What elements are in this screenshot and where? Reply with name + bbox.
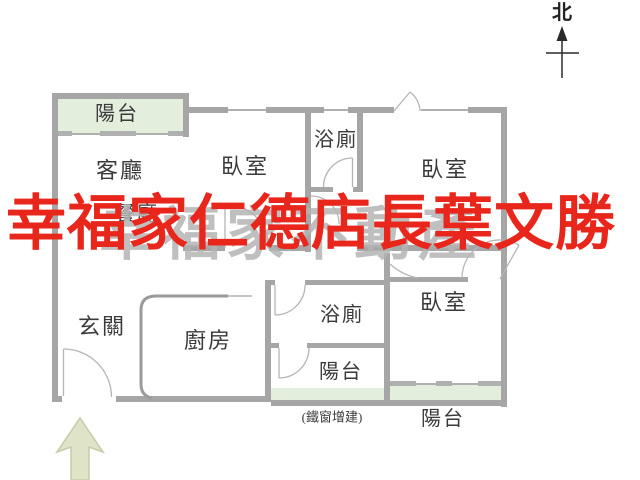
label-bedroom-top-right: 臥室 — [421, 159, 469, 181]
bath-top-door-arc — [324, 158, 353, 187]
label-bath-top: 浴廁 — [314, 130, 358, 150]
iron-window-strip-floor — [271, 388, 384, 400]
entry-door-arc — [64, 349, 112, 397]
label-balcony-top: 陽台 — [95, 104, 139, 124]
balcony-bottom-right-floor — [390, 384, 501, 400]
label-bath-bottom: 浴廁 — [320, 305, 364, 325]
balcony-mid-door-arc — [279, 348, 309, 378]
bath-bottom-door-arc — [275, 285, 305, 315]
top-outswing-door-leaf — [394, 92, 410, 111]
north-label: 北 — [552, 3, 572, 23]
label-entry: 玄關 — [78, 316, 126, 338]
north-arrow-icon — [546, 26, 579, 78]
label-balcony-mid: 陽台 — [319, 362, 363, 382]
entrance-arrow-icon — [57, 418, 103, 480]
label-balcony-bottom-right: 陽台 — [421, 409, 465, 429]
label-living-room: 客廳 — [96, 160, 144, 182]
label-bedroom-top-mid: 臥室 — [221, 156, 269, 178]
floor-plan-page: 陽台 客廳 餐廳 臥室 浴廁 臥室 玄關 廚房 浴廁 陽台 臥室 陽台 (鐵窗增… — [0, 0, 640, 480]
label-kitchen: 廚房 — [184, 330, 232, 352]
label-iron-window-note: (鐵窗增建) — [302, 411, 363, 424]
label-bedroom-bottom-right: 臥室 — [420, 292, 468, 314]
watermark-red: 幸福家仁德店長葉文勝 — [6, 194, 640, 254]
top-outswing-door-arc — [410, 92, 420, 111]
